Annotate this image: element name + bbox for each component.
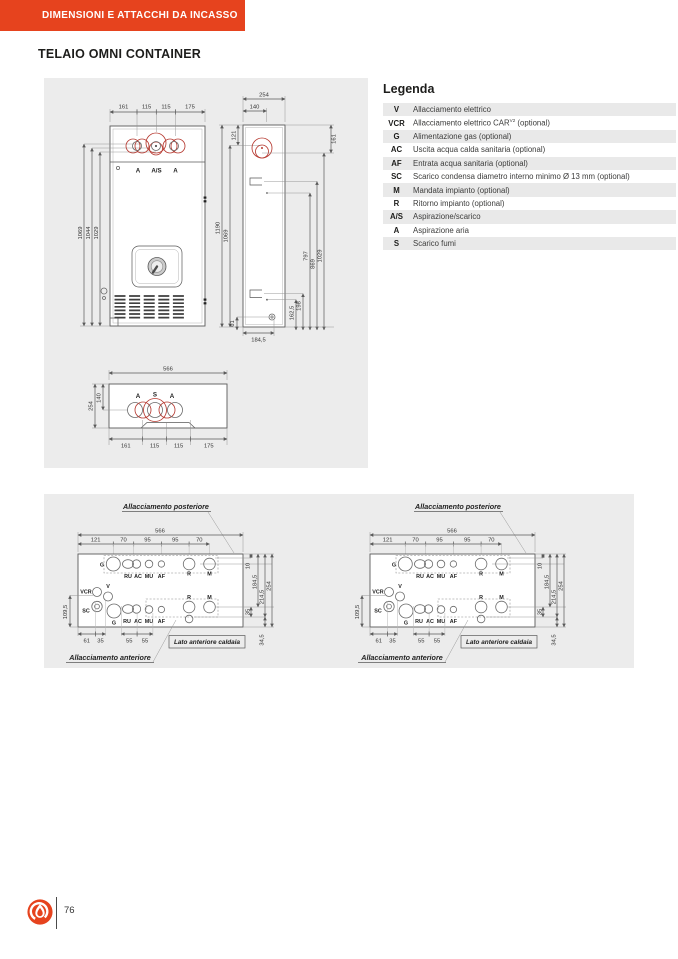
dim-label: 184,5 [545,575,551,590]
dim-label: 1044 [86,226,92,240]
dim-label: 95 [172,538,178,544]
port-label: R [479,595,483,601]
port-label: AC [426,574,434,580]
legend-desc: Aspirazione/scarico [413,212,481,221]
legend-abbr: G [383,132,410,141]
dim-label: 175 [185,105,195,111]
port-label: MU [437,619,445,625]
dim-label: 10 [246,563,252,569]
port-label: V [106,584,110,590]
legend-row: A/SAspirazione/scarico [383,210,676,223]
legend-abbr: SC [383,172,410,181]
dim-label: 869 [311,259,317,269]
port-label: SC [82,609,90,615]
section-banner: DIMENSIONI E ATTACCHI DA INCASSO [0,0,245,31]
dim-label: 115 [150,444,159,450]
legend-desc: Ritorno impianto (optional) [413,199,504,208]
port-label: G [112,621,116,627]
legend-desc: Scarico condensa diametro interno minimo… [413,172,630,181]
dim-label: 10 [538,563,544,569]
port-label: G [100,563,104,569]
legend-desc: Entrata acqua sanitaria (optional) [413,159,528,168]
dim-label: 198 [297,301,303,311]
legend-title: Legenda [383,82,676,96]
legend-desc: Alimentazione gas (optional) [413,132,511,141]
dim-label: 161 [121,444,131,450]
dim-label: 161 [332,134,338,144]
plan-view: 566 254 140 A S A 161 115 115 175 [89,367,228,450]
port-label: RU [124,574,132,580]
annotation-posterior: Allacciamento posteriore [414,502,501,511]
annotation-anterior: Allacciamento anteriore [68,653,151,662]
dim-label: 70 [488,538,494,544]
legend-row: SCScarico condensa diametro interno mini… [383,170,676,183]
port-label: AC [426,619,434,625]
legend-abbr: V [383,105,410,114]
legend-abbr: R [383,199,410,208]
legend-abbr: AC [383,145,410,154]
port-label: V [398,584,402,590]
port-label: VCR [372,590,383,596]
dim-label: 566 [163,367,173,373]
dim-label: 61 [83,639,89,645]
vent-grid [115,296,185,318]
port-label: MU [145,619,153,625]
port-label: A [173,168,178,175]
dim-label: 115 [174,444,183,450]
legend-row: VAllacciamento elettrico [383,103,676,116]
dim-label: 254 [89,400,95,410]
port-label: R [187,572,191,578]
dim-label: 566 [155,529,165,535]
port-label: M [499,572,504,578]
dim-label: 254 [559,580,565,590]
dim-label: 109,5 [355,605,361,620]
port-label: MU [437,574,445,580]
port-label: RU [416,574,424,580]
dimension-drawing: 161 115 115 175 1069 1044 1029 A [38,78,368,470]
dim-label: 95 [144,538,150,544]
dim-label: 121 [383,538,393,544]
annotation-front-side: Lato anteriore caldaia [466,639,533,646]
small-port [101,288,107,294]
port-label: RU [415,619,423,625]
dim-label: 61 [375,639,381,645]
port-label: MU [145,574,153,580]
dim-label: 70 [412,538,418,544]
dim-label: 35 [97,639,103,645]
connection-diagram: Allacciamento posteriore 566 121 70 95 9… [355,502,566,663]
dim-label: 35 [389,639,395,645]
port-label: AF [158,574,166,580]
dim-label: 1069 [224,230,230,243]
port-label: M [207,572,212,578]
dim-label: 95 [464,538,470,544]
port-label: G [404,621,408,627]
footer-divider [56,897,57,929]
legend-row: AFEntrata acqua sanitaria (optional) [383,157,676,170]
dim-label: 55 [418,639,424,645]
port-label: SC [374,609,382,615]
legend-desc: Aspirazione aria [413,226,469,235]
dim-label: 214,5 [552,590,558,605]
port-label: A [136,393,141,400]
port-label: AC [134,574,142,580]
legend-row: AAspirazione aria [383,224,676,237]
legend-desc: Allacciamento elettrico CARV2 (optional) [413,118,550,128]
dim-label: 95 [436,538,442,544]
section-banner-label: DIMENSIONI E ATTACCHI DA INCASSO [42,10,238,21]
port-label: R [479,572,483,578]
front-view: 161 115 115 175 1069 1044 1029 A [78,105,206,327]
connection-diagram-right: Allacciamento posteriore 566 121 70 95 9… [340,494,632,668]
dim-label: 55 [434,639,440,645]
port-label: AC [134,619,142,625]
legend-row: RRitorno impianto (optional) [383,197,676,210]
legend-abbr: A [383,226,410,235]
legend-desc: Allacciamento elettrico [413,105,491,114]
dim-label: 175 [204,444,214,450]
legend-desc: Mandata impianto (optional) [413,186,510,195]
legend-abbr: M [383,186,410,195]
manual-page: { "header": { "banner": "DIMENSIONI E AT… [0,0,678,959]
small-port [103,297,106,300]
port-label: A [170,393,175,400]
legend-row: SScarico fumi [383,237,676,250]
dim-label: 35 [538,609,544,615]
dim-label: 162,5 [290,306,296,321]
connection-diagram-left: Allacciamento posteriore 566 121 70 95 9… [48,494,340,668]
page-title: TELAIO OMNI CONTAINER [38,47,201,61]
port-label: A [136,168,141,175]
port-label: AF [450,619,458,625]
side-view: 254 140 121 1190 1069 161 797 869 1029 [216,93,338,344]
dim-label: 55 [126,639,132,645]
legend-row: GAlimentazione gas (optional) [383,130,676,143]
dim-label: 34,5 [260,634,266,645]
dim-label: 115 [142,105,151,111]
dim-label: 161 [119,105,129,111]
dim-label: 1190 [216,222,222,234]
dim-label: 121 [91,538,101,544]
port-label: M [207,595,212,601]
port-label: S [153,392,157,399]
legend-abbr: AF [383,159,410,168]
dim-label: 566 [447,529,457,535]
dim-label: 34,5 [552,634,558,645]
connection-diagram: Allacciamento posteriore 566 121 70 95 9… [63,502,274,663]
dim-label: 184,5 [253,575,259,590]
dim-label: 1029 [94,227,100,240]
dim-label: 70 [120,538,126,544]
dim-label: 254 [267,580,273,590]
legend-row: MMandata impianto (optional) [383,183,676,196]
annotation-posterior: Allacciamento posteriore [122,502,209,511]
dim-label: 115 [161,105,170,111]
dim-label: 797 [304,251,310,261]
port-label: G [392,563,396,569]
legend-abbr: A/S [383,212,410,221]
dim-label: 61 [230,320,236,326]
legend-row: VCRAllacciamento elettrico CARV2 (option… [383,116,676,129]
dim-label: 55 [142,639,148,645]
dim-label: 35 [246,609,252,615]
port-label: VCR [80,590,91,596]
legend-row: ACUscita acqua calda sanitaria (optional… [383,143,676,156]
port-label: AF [450,574,458,580]
dim-label: 121 [232,131,238,141]
legend: Legenda VAllacciamento elettrico VCRAlla… [383,82,676,250]
dim-label: 214,5 [260,590,266,605]
dim-label: 140 [97,393,103,403]
legend-desc: Scarico fumi [413,239,456,248]
dim-label: 1069 [78,227,84,240]
port-label: RU [123,619,131,625]
legend-abbr: S [383,239,410,248]
brand-logo [27,899,53,925]
dim-label: 140 [250,105,260,111]
dim-label: 1029 [318,250,324,263]
dim-label: 184,5 [251,338,266,344]
dim-label: 254 [259,93,269,99]
legend-desc: Uscita acqua calda sanitaria (optional) [413,145,545,154]
dim-label: 109,5 [63,605,69,620]
page-number: 76 [64,905,75,916]
dim-label: 70 [196,538,202,544]
port-label: R [187,595,191,601]
legend-abbr: VCR [383,119,410,128]
port-label: A/S [151,168,161,175]
port-label: M [499,595,504,601]
annotation-front-side: Lato anteriore caldaia [174,639,241,646]
annotation-anterior: Allacciamento anteriore [360,653,443,662]
port-label: AF [158,619,166,625]
